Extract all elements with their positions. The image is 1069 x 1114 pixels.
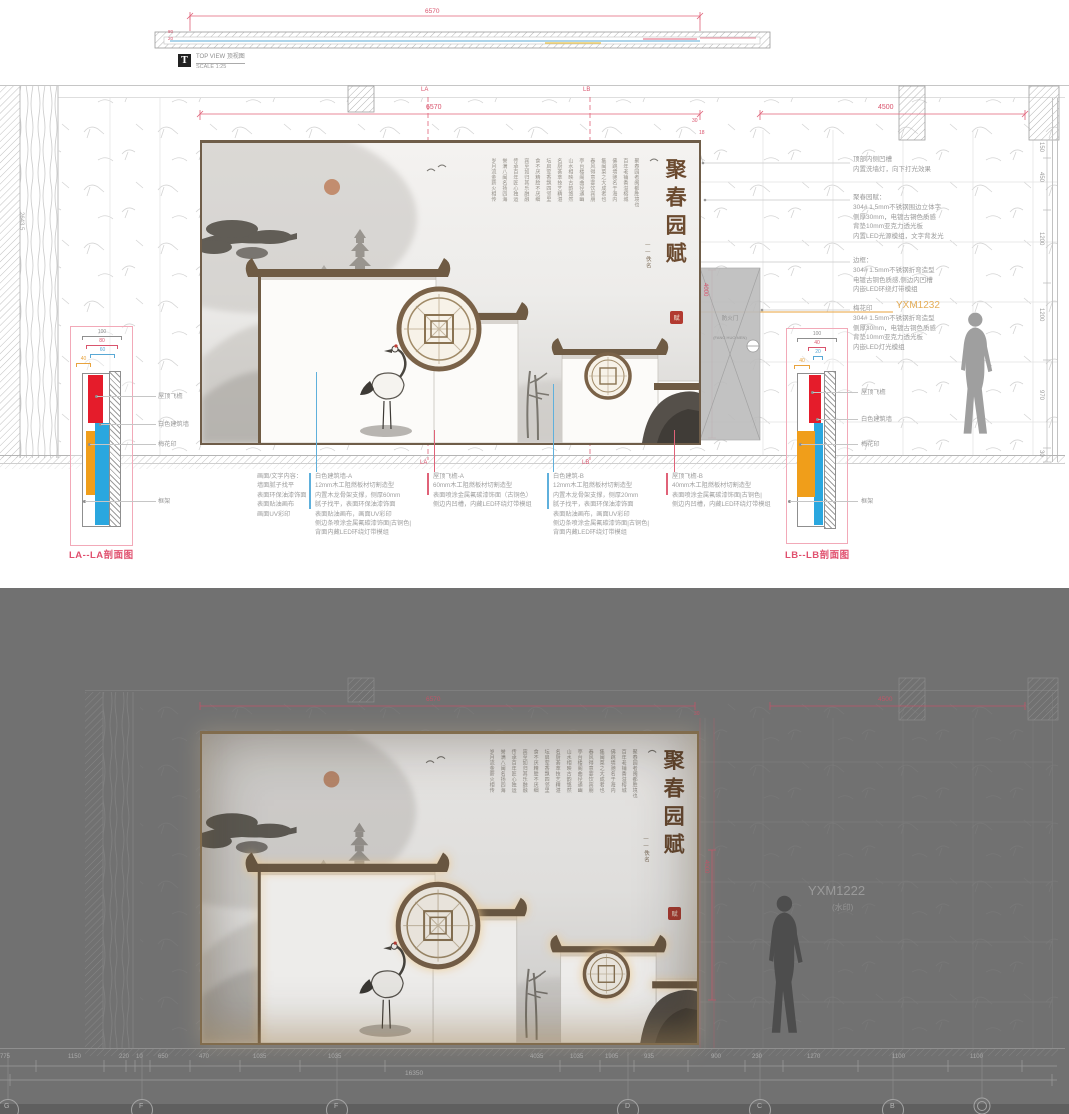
render-dim-4000: 4000 — [701, 860, 710, 873]
annotation-top-groove: 顶部内侧凹槽 内置洗墙灯，向下打光效果 — [853, 155, 1048, 175]
mural-signature: ——佚名 — [642, 836, 650, 863]
rdim-970: 970 — [1036, 390, 1045, 400]
bdim-900: 900 — [711, 1053, 721, 1062]
watermark-render: YXM1222 — [808, 886, 865, 895]
person-silhouette-render — [755, 895, 811, 1040]
bdim-1035a: 1035 — [253, 1053, 266, 1062]
lb-bar-plum — [797, 431, 815, 497]
lb-hatch — [824, 371, 836, 529]
banno-eave-a: 屋顶飞檐-A 60mm木工阻燃板材切割造型 表面喷涂金属氟碳漆饰面（古铜色） 侧… — [433, 472, 551, 510]
grid-bubble-f1: F — [139, 1102, 143, 1111]
mural-artwork-render: 聚春园者闽都胜境也百年老铺香溢榕城佛跳墙驰名于海内集闽菜之大成者也春风得意宴饮宾… — [200, 731, 699, 1045]
leader-red-a — [434, 430, 435, 472]
lb-label-roof: 屋顶飞檐 — [861, 388, 886, 397]
la-bar-roof — [88, 375, 103, 423]
grid-bubble-f2: F — [334, 1102, 338, 1111]
mural-artwork: 聚春园者闽都胜境也百年老铺香溢榕城佛跳墙驰名于海内集闽菜之大成者也春风得意宴饮宾… — [200, 140, 701, 445]
marker-lb-top: LB — [583, 86, 590, 95]
poem-text: 聚春园者闽都胜境也百年老铺香溢榕城佛跳墙驰名于海内集闽菜之大成者也春风得意宴饮宾… — [454, 749, 637, 919]
banno-eave-b: 屋顶飞檐-B 40mm木工阻燃板材切割造型 表面喷涂金属氟碳漆饰面|古铜色| 侧… — [672, 472, 790, 510]
rdim-30: 30 — [1036, 450, 1045, 457]
ann otation-frame: 边框： 304# 1.5mm不锈钢折弯造型 电镀古铜色质感,侧边内凹槽 内嵌LE… — [853, 256, 1048, 295]
banno-wall-b: 白色建筑-B 12mm木工阻燃板材切割造型 内置木龙骨架支撑，侧厚20mm 腻子… — [553, 472, 671, 538]
door-label: 防火门 (FANG HUO MEN) — [702, 306, 758, 351]
marker-la-bottom: LA — [420, 459, 427, 468]
bdim-1100b: 1100 — [970, 1053, 983, 1062]
bdim-1150: 1150 — [68, 1053, 81, 1062]
bdim-total: 16350 — [405, 1069, 423, 1078]
drawing-sheet: 聚春园者闽都胜境也百年老铺香溢榕城佛跳墙驰名于海内集闽菜之大成者也春风得意宴饮宾… — [0, 0, 1069, 1114]
lb-label-wall: 白色建筑墙 — [861, 415, 892, 424]
marker-la-top: LA — [421, 86, 428, 95]
bdim-1035c: 1035 — [570, 1053, 583, 1062]
grid-bubble-g: G — [4, 1102, 9, 1111]
grid-bubble-c: C — [757, 1102, 762, 1111]
dim-4000: 4000 — [700, 283, 709, 296]
lb-bar-roof — [809, 375, 821, 423]
dim-left: 2643.5 — [16, 212, 25, 230]
plum-medallion-small — [586, 354, 630, 398]
mural-signature: ——佚名 — [644, 242, 652, 269]
dim-30: 30 — [692, 117, 698, 126]
lb-label-frame: 框架 — [861, 497, 873, 506]
mural-seal: 赋 — [670, 311, 683, 324]
poem-text: 聚春园者闽都胜境也百年老铺香溢榕城佛跳墙驰名于海内集闽菜之大成者也春风得意宴饮宾… — [455, 158, 639, 323]
section-la-title: LA--LA剖面图 — [69, 547, 134, 561]
bdim-220: 220 — [119, 1053, 129, 1062]
leader-blue-a — [316, 372, 317, 472]
bdim-1270: 1270 — [807, 1053, 820, 1062]
annotation-title-letters: 聚春园赋： 304# 1.5mm不锈钢围边立体字 侧厚30mm，电镀古铜色质感 … — [853, 193, 1048, 242]
topview-scale: SCALE 1:25 — [196, 63, 226, 72]
topview-side-dim-2: 20 — [168, 36, 173, 41]
sun — [324, 771, 340, 787]
section-la-box: 100 80 60 40 — [70, 326, 133, 546]
render-dim-4500: 4500 — [878, 695, 892, 704]
la-bar-plum — [86, 431, 95, 495]
la-bar-wall — [95, 423, 109, 525]
section-lb-title: LB--LB剖面图 — [785, 547, 850, 561]
bdim-470: 470 — [199, 1053, 209, 1062]
render-dim-6570: 6570 — [426, 695, 440, 704]
sun — [324, 179, 340, 195]
annotation-plum-seal: 梅花印 304# 1.5mm不锈钢折弯造型 侧厚30mm，电镀古铜色质感 背垫1… — [853, 304, 1048, 353]
lb-bar-wall — [814, 423, 823, 525]
leader-red-b — [674, 430, 675, 472]
plum-medallion-small — [584, 951, 628, 996]
render-dim-30: 30 — [694, 710, 700, 719]
bdim-650: 650 — [158, 1053, 168, 1062]
bdim-935: 935 — [644, 1053, 654, 1062]
leader-blue-b — [553, 384, 554, 472]
marker-lb-bottom: LB — [582, 459, 589, 468]
bdim-4035: 4035 — [530, 1053, 543, 1062]
watermark-note: (水印) — [832, 903, 853, 912]
lb-label-plum: 梅花印 — [861, 440, 880, 449]
la-hatch — [109, 371, 121, 527]
bdim-775: 775 — [0, 1053, 10, 1062]
topview-badge: T — [178, 54, 191, 67]
banno-wall-a: 白色建筑墙-A 12mm木工阻燃板材切割造型 内置木龙骨架支撑，侧厚60mm 腻… — [315, 472, 433, 538]
bdim-230: 230 — [752, 1053, 762, 1062]
topview-dim: 6570 — [425, 7, 439, 16]
dim-18: 18 — [699, 129, 705, 138]
bdim-1905: 1905 — [605, 1053, 618, 1062]
la-label-plum: 梅花印 — [158, 440, 177, 449]
la-label-wall: 白色建筑墙 — [158, 420, 189, 429]
dim-6570: 6570 — [426, 103, 442, 112]
dim-4500: 4500 — [878, 103, 894, 112]
rdim-150: 150 — [1036, 142, 1045, 152]
bdim-10: 10 — [136, 1053, 143, 1062]
la-label-frame: 框架 — [158, 497, 170, 506]
topview-side-dim-1: 80 — [168, 29, 173, 34]
section-lb-box: 100 40 20 40 — [786, 328, 848, 544]
bdim-1100a: 1100 — [892, 1053, 905, 1062]
bdim-1035b: 1035 — [328, 1053, 341, 1062]
mural-seal: 赋 — [668, 907, 681, 920]
la-label-roof: 屋顶飞檐 — [158, 392, 183, 401]
grid-bubble-b: B — [890, 1102, 895, 1111]
grid-bubble-d: D — [625, 1102, 630, 1111]
